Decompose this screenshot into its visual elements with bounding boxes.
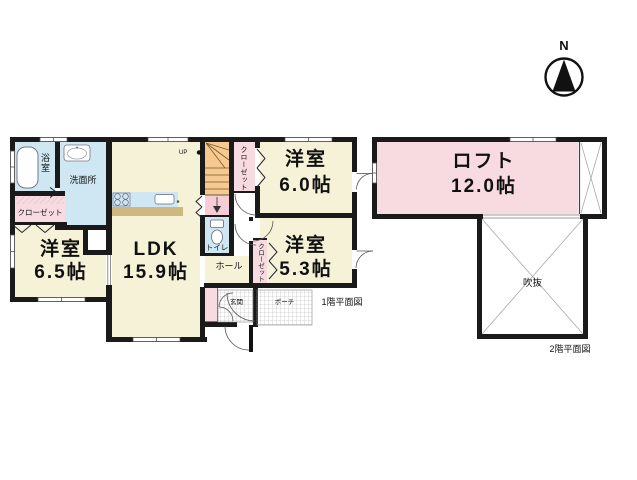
wall-segment <box>204 283 357 288</box>
room-size: 6.0帖 <box>260 173 352 199</box>
stairs-up-label: UP <box>179 150 187 156</box>
wall-segment <box>200 253 234 256</box>
wall-segment <box>200 287 205 342</box>
void-label: 吹抜 <box>482 279 583 289</box>
closet-stairs-label: クローゼット <box>240 146 247 190</box>
wall-segment <box>372 137 377 219</box>
room-toilet-label: トイレ <box>203 244 231 252</box>
wall-segment <box>477 334 588 339</box>
wall-segment <box>10 137 357 142</box>
wall-segment <box>229 137 234 255</box>
room-bedroom65-label: 洋室 6.5帖 <box>15 238 107 284</box>
wall-segment <box>234 191 255 193</box>
wall-segment <box>602 137 607 219</box>
sliding-door-icon <box>108 255 111 285</box>
room-bedroom53-label: 洋室 5.3帖 <box>260 234 352 282</box>
kitchen-counter-area <box>112 192 178 207</box>
porch-label: ポーチ <box>257 300 312 307</box>
room-name: 洋室 <box>260 234 352 258</box>
room-name: LDK <box>112 238 200 261</box>
kitchen-counter-edge <box>112 207 183 216</box>
room-washroom-label: 洗面所 <box>60 176 106 185</box>
room-ldk-label: LDK 15.9帖 <box>112 238 200 284</box>
room-size: 12.0帖 <box>379 174 589 199</box>
room-hall-label: ホール <box>207 262 251 271</box>
wall-segment <box>200 322 257 327</box>
floor1-caption: 1階平面図 <box>316 298 368 307</box>
entrance-label: 玄関 <box>220 300 253 307</box>
wall-segment <box>200 137 205 195</box>
wall-segment <box>203 215 234 217</box>
compass-north-label: N <box>552 39 576 52</box>
room-bedroom60-label: 洋室 6.0帖 <box>260 147 352 199</box>
floorplan-canvas: 浴室 洗面所 クローゼット 洋室 6.5帖 LDK 15.9帖 UP トイレ ホ… <box>0 0 637 480</box>
room-name: ロフト <box>379 149 589 174</box>
wall-segment <box>249 217 253 283</box>
compass-icon <box>546 59 583 96</box>
wall-segment <box>352 137 357 288</box>
stairs-area <box>205 142 229 195</box>
stairs-landing-area <box>205 195 229 215</box>
wall-segment <box>583 219 588 339</box>
room-size: 6.5帖 <box>15 261 107 284</box>
room-size: 15.9帖 <box>112 261 200 284</box>
closet-bath-label: クローゼット <box>15 209 65 217</box>
room-size: 5.3帖 <box>260 258 352 282</box>
wall-segment <box>10 191 65 196</box>
wall-segment <box>253 288 258 327</box>
room-name: 洋室 <box>15 238 107 261</box>
wall-segment <box>106 285 112 342</box>
wall-segment <box>255 213 357 218</box>
wall-segment <box>372 137 607 142</box>
wall-segment <box>106 337 207 342</box>
floor2-caption: 2階平面図 <box>544 345 596 354</box>
wall-segment <box>10 297 112 302</box>
wall-segment <box>372 214 607 219</box>
shoe-cabinet-area <box>204 287 218 322</box>
room-loft-label: ロフト 12.0帖 <box>379 149 589 199</box>
room-bath-label: 浴室 <box>40 153 49 173</box>
room-name: 洋室 <box>260 147 352 173</box>
